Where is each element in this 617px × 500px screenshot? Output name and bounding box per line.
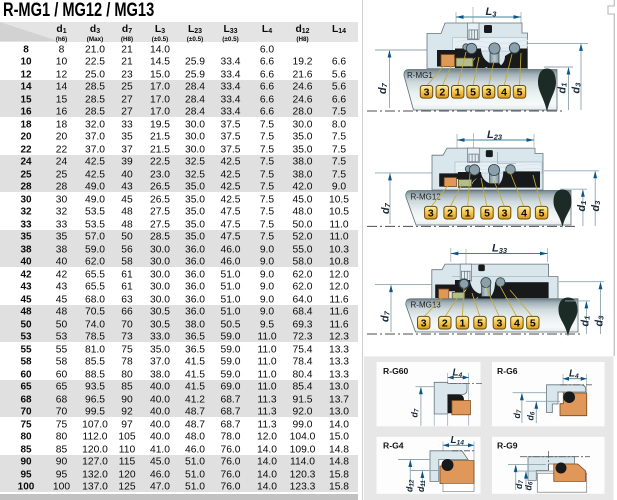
- svg-text:3: 3: [496, 318, 502, 330]
- svg-text:3: 3: [421, 318, 427, 330]
- svg-text:1: 1: [465, 208, 471, 220]
- svg-text:3: 3: [486, 87, 492, 99]
- svg-text:5: 5: [470, 87, 476, 99]
- svg-text:R-G9: R-G9: [497, 441, 518, 451]
- svg-text:d7: d7: [380, 310, 392, 322]
- svg-text:R-G6: R-G6: [497, 366, 518, 376]
- svg-text:L23: L23: [487, 129, 503, 142]
- svg-text:d3: d3: [590, 200, 602, 212]
- svg-text:4: 4: [521, 208, 527, 220]
- svg-text:3: 3: [502, 208, 508, 220]
- svg-text:d1: d1: [579, 316, 591, 327]
- svg-text:2: 2: [442, 318, 448, 330]
- svg-text:1: 1: [455, 87, 461, 99]
- svg-text:3: 3: [424, 87, 430, 99]
- svg-text:1: 1: [459, 318, 465, 330]
- svg-text:L33: L33: [492, 242, 508, 255]
- svg-text:5: 5: [539, 208, 545, 220]
- svg-text:R-MG1: R-MG1: [407, 71, 433, 80]
- svg-text:d3: d3: [570, 82, 582, 94]
- svg-text:2: 2: [439, 87, 445, 99]
- svg-text:5: 5: [484, 208, 490, 220]
- svg-text:5: 5: [477, 318, 483, 330]
- svg-text:4: 4: [501, 87, 507, 99]
- svg-text:R-G60: R-G60: [383, 366, 409, 376]
- svg-text:L3: L3: [486, 6, 498, 18]
- svg-text:R-G4: R-G4: [383, 441, 404, 451]
- svg-text:5: 5: [530, 318, 536, 330]
- svg-text:d1: d1: [576, 201, 588, 212]
- svg-text:5: 5: [517, 87, 523, 99]
- svg-text:d7: d7: [380, 202, 392, 214]
- svg-text:d1: d1: [557, 83, 569, 94]
- svg-text:d7: d7: [377, 82, 389, 94]
- svg-text:4: 4: [514, 318, 520, 330]
- svg-text:d3: d3: [594, 315, 606, 327]
- svg-text:3: 3: [428, 208, 434, 220]
- svg-text:2: 2: [447, 208, 453, 220]
- svg-text:R-MG13: R-MG13: [411, 301, 442, 310]
